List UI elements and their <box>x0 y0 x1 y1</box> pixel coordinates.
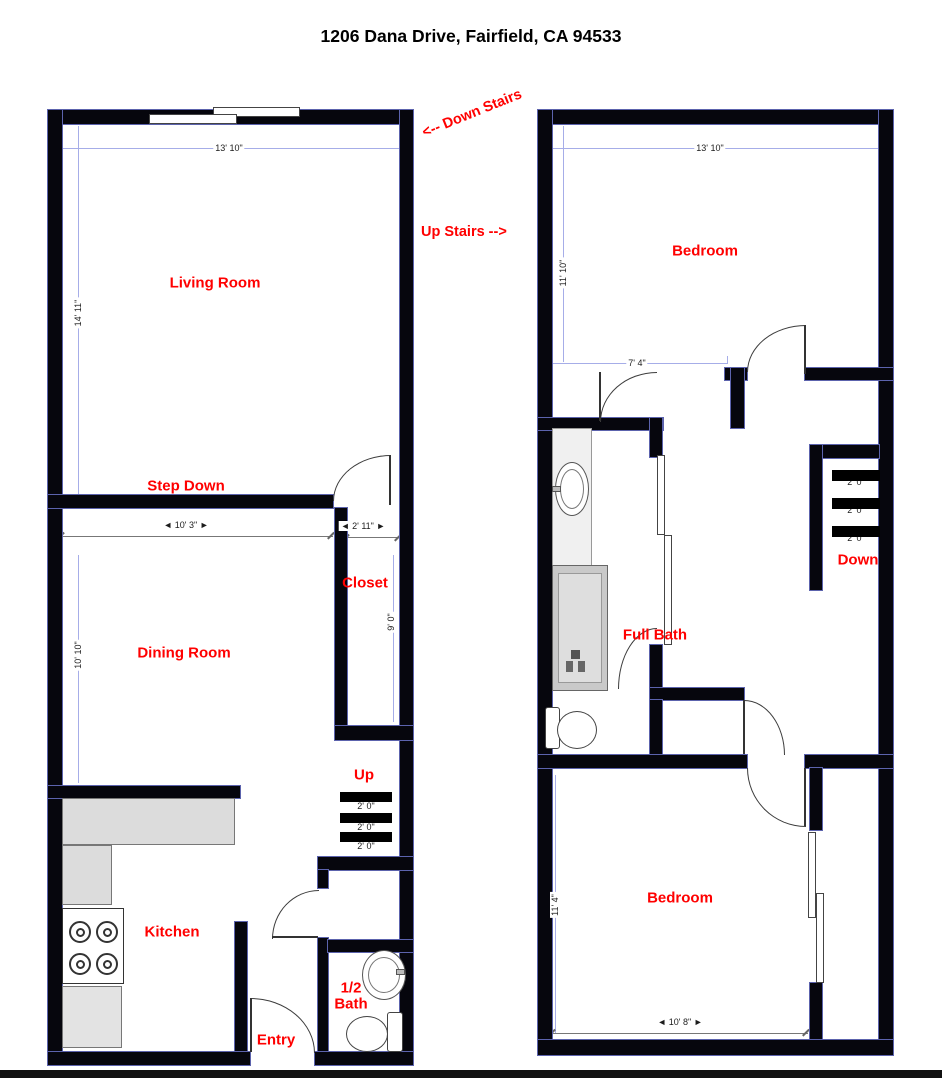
door-arc <box>272 890 319 939</box>
dimension-line <box>62 536 333 537</box>
stair-tread <box>832 470 880 481</box>
door-arc <box>744 700 785 755</box>
wall <box>48 786 240 798</box>
room-label-stepdown: Step Down <box>147 478 225 495</box>
wall <box>650 688 744 700</box>
room-label-entry: Entry <box>257 1032 295 1049</box>
wall <box>820 445 879 458</box>
wall <box>48 1052 250 1065</box>
wall <box>318 870 328 888</box>
dimension-line <box>552 1033 808 1034</box>
dim-tread: 2' 0" <box>357 841 374 851</box>
wall <box>650 700 662 757</box>
wall <box>48 110 62 1065</box>
wall <box>538 1040 893 1055</box>
wall <box>48 495 333 508</box>
down-stairs-annotation: <-- Down Stairs <box>420 86 524 141</box>
door-leaf <box>272 936 318 938</box>
up-stairs-annotation: Up Stairs --> <box>421 224 507 240</box>
dim-tread: 2' 0" <box>357 801 374 811</box>
sliding-door-panel <box>808 832 816 918</box>
dimension-line <box>393 555 394 722</box>
dimension-line <box>347 537 400 538</box>
kitchen-counter <box>62 845 112 905</box>
sliding-door-panel <box>657 455 665 535</box>
room-label-up: Up <box>354 767 374 784</box>
wall <box>805 755 893 768</box>
room-label-bedroom-back: Bedroom <box>647 890 713 907</box>
dim-closet-width: ◄ 2' 11" ► <box>339 521 388 531</box>
wall <box>650 418 662 457</box>
dim-bedroom-back-height: 11' 4" <box>550 892 560 918</box>
room-label-living: Living Room <box>170 275 261 292</box>
wall <box>335 508 347 730</box>
kitchen-counter <box>62 798 235 845</box>
wall <box>538 755 747 768</box>
door-leaf <box>743 700 745 754</box>
wall <box>810 768 822 830</box>
wall <box>805 368 893 380</box>
dim-bedroom-back-width: ◄ 10' 8" ► <box>655 1017 704 1027</box>
refrigerator <box>62 986 122 1048</box>
door-arc <box>600 372 657 422</box>
window <box>149 114 237 124</box>
dim-bedroom-front-width: 13' 10" <box>694 143 725 153</box>
room-label-bedroom-front: Bedroom <box>672 243 738 260</box>
stove-burner <box>69 953 91 975</box>
toilet-bowl <box>346 1016 388 1052</box>
toilet-tank <box>387 1012 403 1052</box>
wall <box>538 110 893 124</box>
door-leaf <box>599 372 601 421</box>
dim-tread: 2' 0" <box>357 822 374 832</box>
room-label-fullbath: Full Bath <box>623 627 687 644</box>
room-label-halfbath: 1/2 Bath <box>328 980 374 1012</box>
wall <box>235 922 247 1065</box>
wall <box>731 368 744 428</box>
dim-hall-width: 7' 4" <box>626 358 647 368</box>
bathroom-sink-basin <box>560 469 584 509</box>
wall <box>318 857 413 870</box>
dimension-line <box>563 126 564 362</box>
stair-tread <box>340 832 392 842</box>
door-arc <box>747 768 806 827</box>
dim-living-width: 13' 10" <box>213 143 244 153</box>
tub-faucet <box>566 661 573 672</box>
door-arc <box>333 455 391 501</box>
tub-faucet <box>571 650 580 659</box>
sliding-door-panel <box>816 893 824 983</box>
dim-bedroom-front-height: 11' 10" <box>558 258 568 289</box>
stove-burner <box>96 953 118 975</box>
wall <box>335 726 413 740</box>
page-bottom-divider <box>0 1070 942 1078</box>
door-leaf <box>804 325 806 374</box>
stair-tread <box>340 813 392 823</box>
wall <box>318 938 328 1065</box>
stair-tread <box>340 792 392 802</box>
dim-dining-height: 10' 10" <box>73 639 83 670</box>
stove-burner <box>96 921 118 943</box>
room-label-kitchen: Kitchen <box>144 924 199 941</box>
tub-faucet <box>578 661 585 672</box>
room-label-dining: Dining Room <box>137 645 230 662</box>
room-label-closet: Closet <box>342 575 388 592</box>
wall <box>810 445 822 590</box>
dim-closet-height: 9' 0" <box>386 611 396 632</box>
dim-living-height: 14' 11" <box>73 298 83 329</box>
toilet-bowl <box>557 711 597 749</box>
wall <box>315 1052 413 1065</box>
wall <box>400 110 413 1065</box>
stove <box>62 908 124 984</box>
door-leaf <box>389 455 391 505</box>
stair-tread <box>832 526 880 537</box>
sink-faucet <box>396 969 405 975</box>
door-leaf <box>804 768 806 826</box>
page-title: 1206 Dana Drive, Fairfield, CA 94533 <box>0 26 942 47</box>
door-arc <box>747 325 806 372</box>
floor-plan-page: 1206 Dana Drive, Fairfield, CA 94533 13'… <box>0 0 942 1080</box>
stove-burner <box>69 921 91 943</box>
stair-tread <box>832 498 880 509</box>
wall <box>328 940 413 952</box>
wall <box>879 110 893 1055</box>
room-label-down: Down <box>838 552 879 569</box>
door-leaf <box>250 998 252 1052</box>
dim-dining-width: ◄ 10' 3" ► <box>161 520 210 530</box>
sink-faucet <box>552 486 561 492</box>
